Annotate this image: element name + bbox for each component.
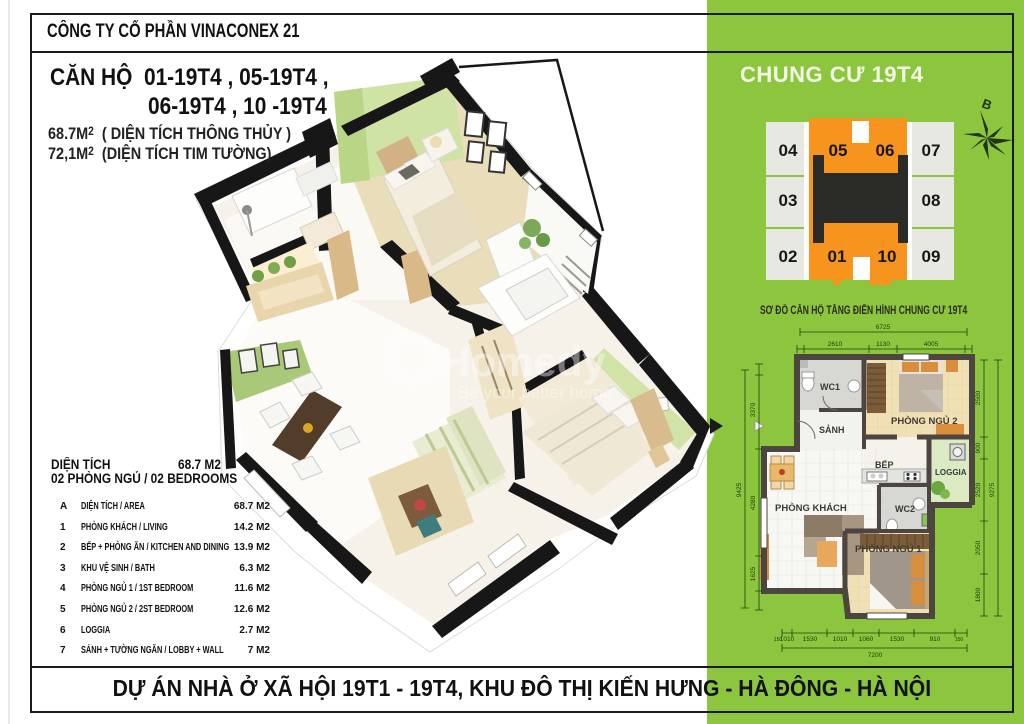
svg-text:1010: 1010 — [780, 636, 795, 643]
svg-text:900: 900 — [975, 442, 982, 453]
svg-text:04: 04 — [779, 141, 798, 160]
svg-text:7200: 7200 — [868, 652, 883, 659]
svg-text:2520: 2520 — [975, 482, 982, 497]
svg-text:3370: 3370 — [750, 402, 757, 417]
svg-text:PHÒNG NGỦ 1: PHÒNG NGỦ 1 — [855, 543, 922, 555]
svg-text:150: 150 — [955, 637, 964, 643]
svg-text:1010: 1010 — [833, 636, 848, 643]
svg-text:03: 03 — [779, 191, 798, 210]
svg-text:08: 08 — [922, 191, 941, 210]
svg-text:2610: 2610 — [828, 341, 843, 348]
svg-text:PHÒNG KHÁCH: PHÒNG KHÁCH — [775, 502, 847, 514]
svg-text:01: 01 — [828, 247, 847, 266]
svg-text:9425: 9425 — [736, 482, 743, 497]
svg-text:4005: 4005 — [924, 341, 939, 348]
svg-text:07: 07 — [922, 141, 941, 160]
svg-text:9275: 9275 — [989, 482, 996, 497]
svg-text:2050: 2050 — [975, 540, 982, 555]
svg-text:1530: 1530 — [890, 636, 905, 643]
svg-text:09: 09 — [922, 247, 941, 266]
svg-text:WC2: WC2 — [895, 504, 915, 514]
svg-text:PHÒNG NGỦ 2: PHÒNG NGỦ 2 — [891, 415, 958, 427]
svg-text:1800: 1800 — [975, 587, 982, 602]
svg-text:910: 910 — [930, 636, 941, 643]
svg-text:BẾP: BẾP — [875, 460, 894, 470]
svg-text:1530: 1530 — [803, 636, 818, 643]
svg-text:1060: 1060 — [859, 636, 874, 643]
svg-text:1130: 1130 — [876, 341, 890, 348]
svg-text:06: 06 — [876, 141, 895, 160]
svg-text:SẢNH: SẢNH — [819, 424, 845, 435]
svg-text:2500: 2500 — [975, 390, 982, 405]
svg-text:4280: 4280 — [750, 495, 757, 510]
svg-text:10: 10 — [878, 247, 897, 266]
svg-text:05: 05 — [829, 141, 848, 160]
svg-text:1625: 1625 — [750, 566, 757, 581]
svg-text:WC1: WC1 — [820, 382, 840, 392]
svg-text:02: 02 — [779, 247, 798, 266]
svg-text:B: B — [980, 96, 994, 113]
svg-text:6725: 6725 — [876, 324, 891, 331]
svg-text:LOGGIA: LOGGIA — [935, 468, 967, 477]
